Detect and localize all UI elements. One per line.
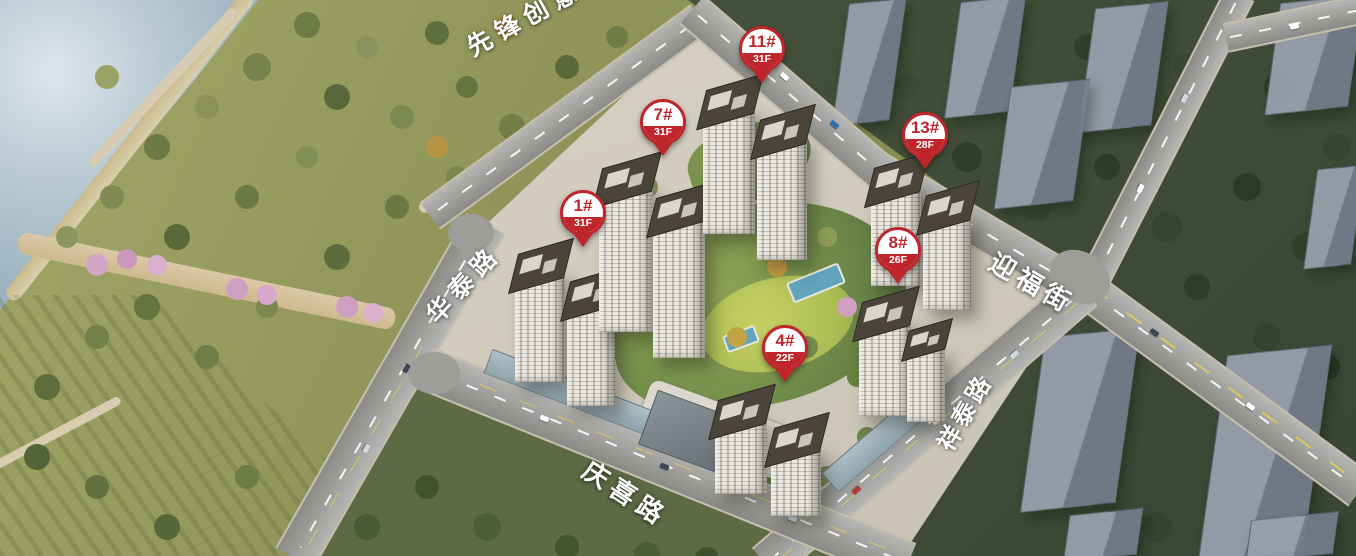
building-facade xyxy=(907,348,945,422)
pin-building-8[interactable]: 8# 26F xyxy=(875,227,921,291)
pin-tail xyxy=(572,232,594,247)
pin-floor-count: 31F xyxy=(742,53,782,69)
street-label-xianfeng: 先锋创意 xyxy=(459,0,588,64)
pin-head: 11# 31F xyxy=(739,26,785,72)
pin-building-number: 1# xyxy=(563,193,603,217)
pin-floor-count: 31F xyxy=(643,126,683,142)
pin-building-13[interactable]: 13# 28F xyxy=(902,112,948,176)
pin-tail xyxy=(774,367,796,382)
pin-building-1[interactable]: 1# 31F xyxy=(560,190,606,254)
pin-building-number: 4# xyxy=(765,328,805,352)
building-facade xyxy=(599,184,653,332)
pin-building-11[interactable]: 11# 31F xyxy=(739,26,785,90)
intersection xyxy=(408,352,460,394)
pin-building-number: 11# xyxy=(742,29,782,53)
context-tower xyxy=(1063,508,1143,556)
pin-floor-count: 28F xyxy=(905,139,945,155)
pin-head: 13# 28F xyxy=(902,112,948,158)
pin-head: 7# 31F xyxy=(640,99,686,145)
pin-building-number: 8# xyxy=(878,230,918,254)
pin-tail xyxy=(914,154,936,169)
building-facade xyxy=(653,214,705,358)
pin-building-4[interactable]: 4# 22F xyxy=(762,325,808,389)
pin-tail xyxy=(652,141,674,156)
pin-building-7[interactable]: 7# 31F xyxy=(640,99,686,163)
aerial-site-plan: 先锋创意 华泰路 迎福街 祥泰路 庆喜路 1# 31F 4# 22F 7# 31… xyxy=(0,0,1356,556)
pin-head: 1# 31F xyxy=(560,190,606,236)
pin-tail xyxy=(887,269,909,284)
pin-floor-count: 26F xyxy=(878,254,918,270)
pin-head: 4# 22F xyxy=(762,325,808,371)
pin-floor-count: 22F xyxy=(765,352,805,368)
pin-building-number: 13# xyxy=(905,115,945,139)
pin-floor-count: 31F xyxy=(563,217,603,233)
pin-tail xyxy=(751,68,773,83)
pin-head: 8# 26F xyxy=(875,227,921,273)
pin-building-number: 7# xyxy=(643,102,683,126)
